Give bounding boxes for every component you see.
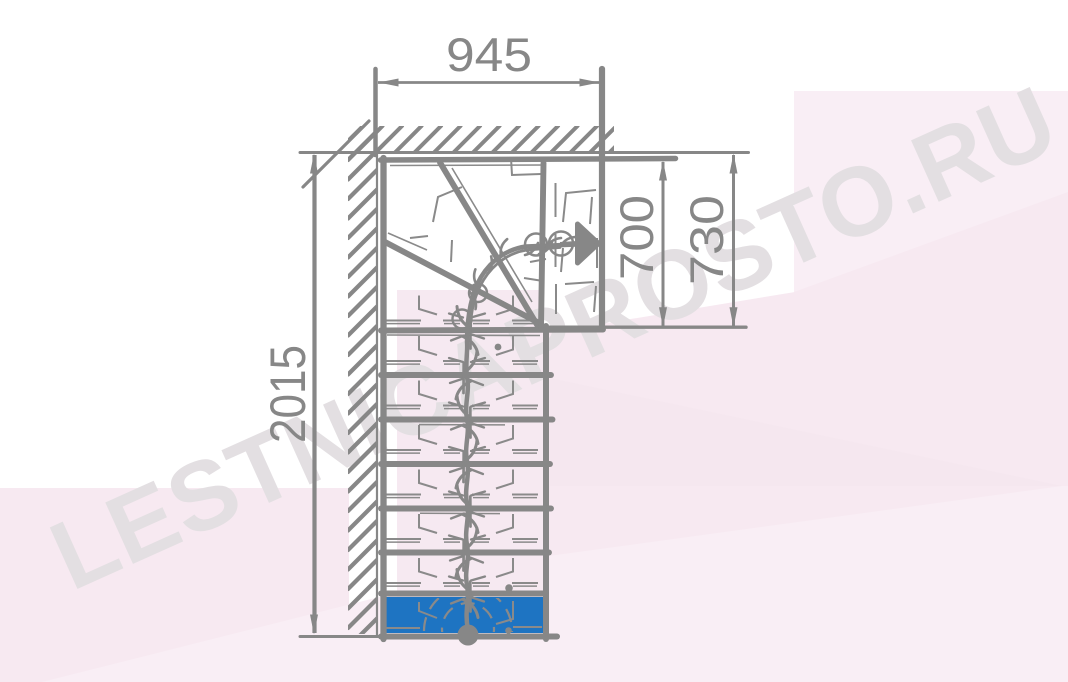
svg-text:945: 945 xyxy=(446,28,532,81)
svg-text:700: 700 xyxy=(610,195,663,280)
svg-text:730: 730 xyxy=(680,195,733,285)
svg-text:2015: 2015 xyxy=(260,345,316,443)
